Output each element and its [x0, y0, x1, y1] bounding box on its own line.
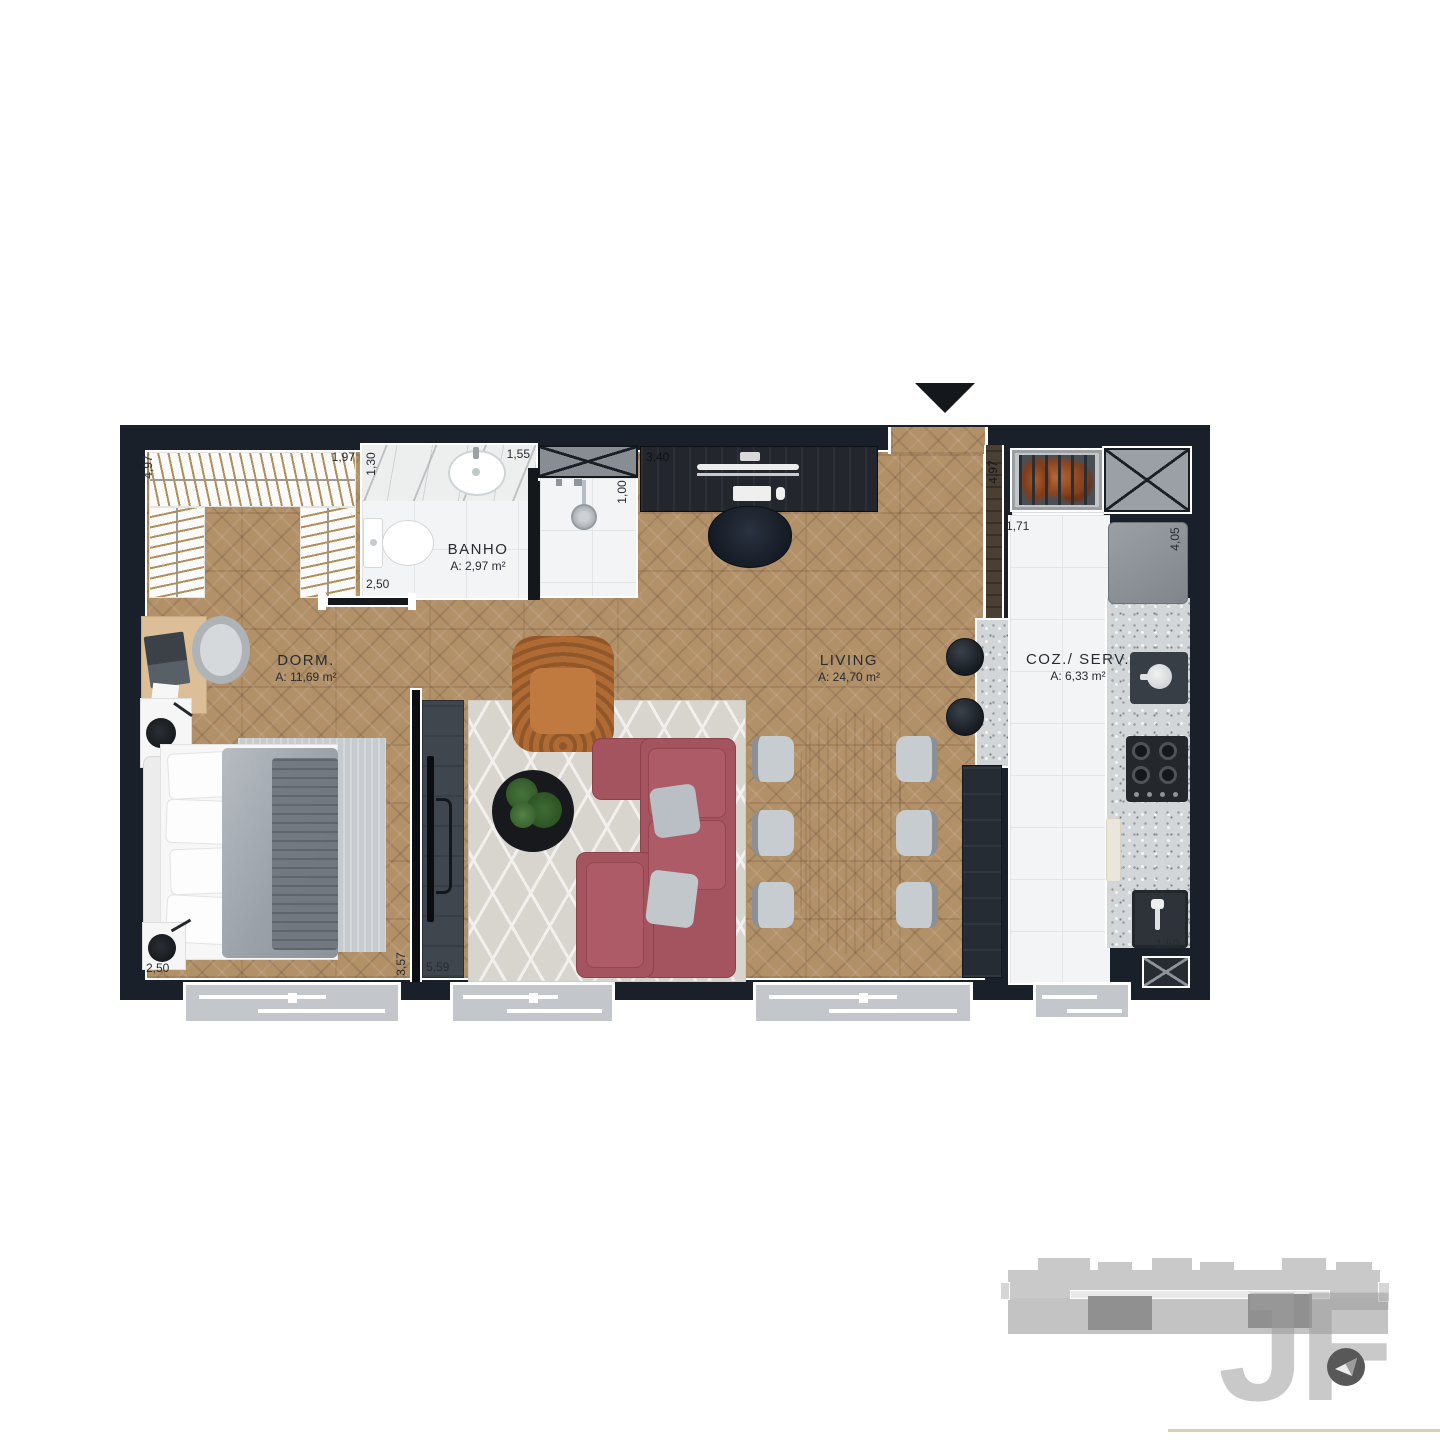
living-window	[753, 982, 973, 1024]
room-name-bath: BANHO	[408, 541, 548, 558]
shower-head-icon	[571, 504, 597, 530]
armchair-seat	[530, 668, 596, 734]
dining-chair	[896, 736, 938, 782]
mouse-icon	[776, 487, 785, 500]
toilet-flush-icon	[370, 539, 377, 546]
bar-stool	[946, 698, 984, 736]
office-chair	[708, 506, 792, 568]
dimension-label: 1,71	[1006, 519, 1029, 533]
keyboard-icon	[733, 486, 771, 501]
window-handle-icon	[288, 993, 297, 1003]
dining-table	[800, 712, 904, 954]
bar-stool	[946, 638, 984, 676]
dining-chair	[752, 736, 794, 782]
room-area-kitchen: A: 6,33 m²	[1008, 669, 1148, 683]
dimension-label: 4,97	[141, 447, 155, 487]
dimension-label: 4,97	[986, 452, 1000, 492]
burner-icon	[1159, 766, 1177, 784]
sofa-pillow	[649, 783, 702, 839]
dimension-label: 3,57	[394, 944, 408, 984]
room-area-dorm: A: 11,69 m²	[236, 670, 376, 684]
room-area-bath: A: 2,97 m²	[408, 559, 548, 573]
laptop-icon	[144, 631, 191, 688]
window-rail	[1042, 995, 1097, 999]
dimension-label: 2,50	[146, 961, 169, 975]
window-rail	[1067, 1009, 1122, 1013]
dimension-label: 1,00	[615, 472, 629, 512]
sink-drain-icon	[472, 468, 480, 476]
dimension-label: 5,59	[426, 960, 449, 974]
dining-chair	[896, 882, 938, 928]
tv-bracket-icon	[436, 798, 452, 894]
entrance-marker-icon	[915, 383, 975, 413]
entry-doorway-floor	[888, 427, 988, 454]
room-area-living: A: 24,70 m²	[779, 670, 919, 684]
cooktop-knob-icon	[1147, 792, 1152, 797]
bedside-lamp-icon	[148, 934, 176, 962]
shower-handles-icon	[556, 479, 582, 486]
burner-icon	[1132, 766, 1150, 784]
cooktop-knob-icon	[1173, 792, 1178, 797]
room-name-dorm: DORM.	[236, 652, 376, 669]
monitor-stand-icon	[740, 452, 760, 461]
window-handle-icon	[859, 993, 868, 1003]
burner-icon	[1132, 742, 1150, 760]
kettle-icon	[1147, 664, 1172, 689]
room-name-living: LIVING	[779, 652, 919, 669]
window-handle-icon	[529, 993, 538, 1003]
shower-arm-icon	[582, 480, 586, 507]
cutting-board	[1106, 818, 1121, 882]
room-name-kitchen: COZ./ SERV.	[1008, 651, 1148, 668]
tv-icon	[427, 756, 434, 922]
bathroom-door-jamb	[318, 593, 326, 610]
sofa-pillow	[645, 869, 699, 928]
living-window	[450, 982, 615, 1024]
dimension-label: 1,55	[494, 447, 530, 461]
kitchen-window	[1033, 982, 1131, 1020]
dimension-label: 1,50	[1156, 937, 1179, 951]
window-rail	[199, 995, 326, 999]
cooktop-knob-icon	[1134, 792, 1139, 797]
living-kitchen-divider-cabinet	[962, 765, 1002, 978]
bathroom-faucet-icon	[473, 447, 479, 459]
floor-plan-canvas: 4,97 1,97 1,30 1,55 2,50 1,00 3,40 4,97 …	[0, 0, 1440, 1440]
dorm-living-partition-wall	[410, 688, 422, 982]
keyplan-highlighted-unit	[1088, 1296, 1152, 1330]
dimension-label: 3,40	[646, 450, 669, 464]
window-rail	[258, 1009, 385, 1013]
sofa-cushion	[586, 862, 644, 968]
dining-chair	[896, 810, 938, 856]
closet-right-section	[300, 507, 356, 598]
shower-partition-wall	[528, 468, 540, 600]
keyplan-block	[1000, 1282, 1010, 1300]
window-rail	[507, 1009, 602, 1013]
bedroom-window	[183, 982, 401, 1024]
dimension-label: 4,05	[1168, 519, 1182, 559]
barbecue-grill-icon	[1019, 455, 1095, 505]
plant-icon	[510, 802, 536, 828]
duct-shaft-icon	[1104, 448, 1190, 512]
kitchen-faucet-icon	[1151, 899, 1164, 909]
dining-chair	[752, 882, 794, 928]
footer-divider	[1168, 1429, 1440, 1432]
duct-shaft-icon	[1142, 956, 1190, 988]
monitor-base-icon	[697, 473, 799, 476]
bed-throw-blanket	[272, 758, 338, 950]
dining-chair	[752, 810, 794, 856]
bathroom-door-leaf	[326, 596, 410, 607]
dimension-label: 1,97	[319, 450, 355, 464]
dimension-label: 1,30	[364, 444, 378, 484]
window-rail	[463, 995, 558, 999]
window-rail	[769, 995, 897, 999]
kitchen-faucet-icon	[1155, 906, 1160, 930]
closet-left-section	[149, 507, 205, 598]
kitchen-floor	[1008, 515, 1110, 985]
compass-icon	[1326, 1347, 1366, 1387]
dimension-label: 2,50	[366, 577, 389, 591]
monitor-icon	[697, 464, 799, 470]
cooktop-knob-icon	[1160, 792, 1165, 797]
burner-icon	[1159, 742, 1177, 760]
window-rail	[829, 1009, 957, 1013]
